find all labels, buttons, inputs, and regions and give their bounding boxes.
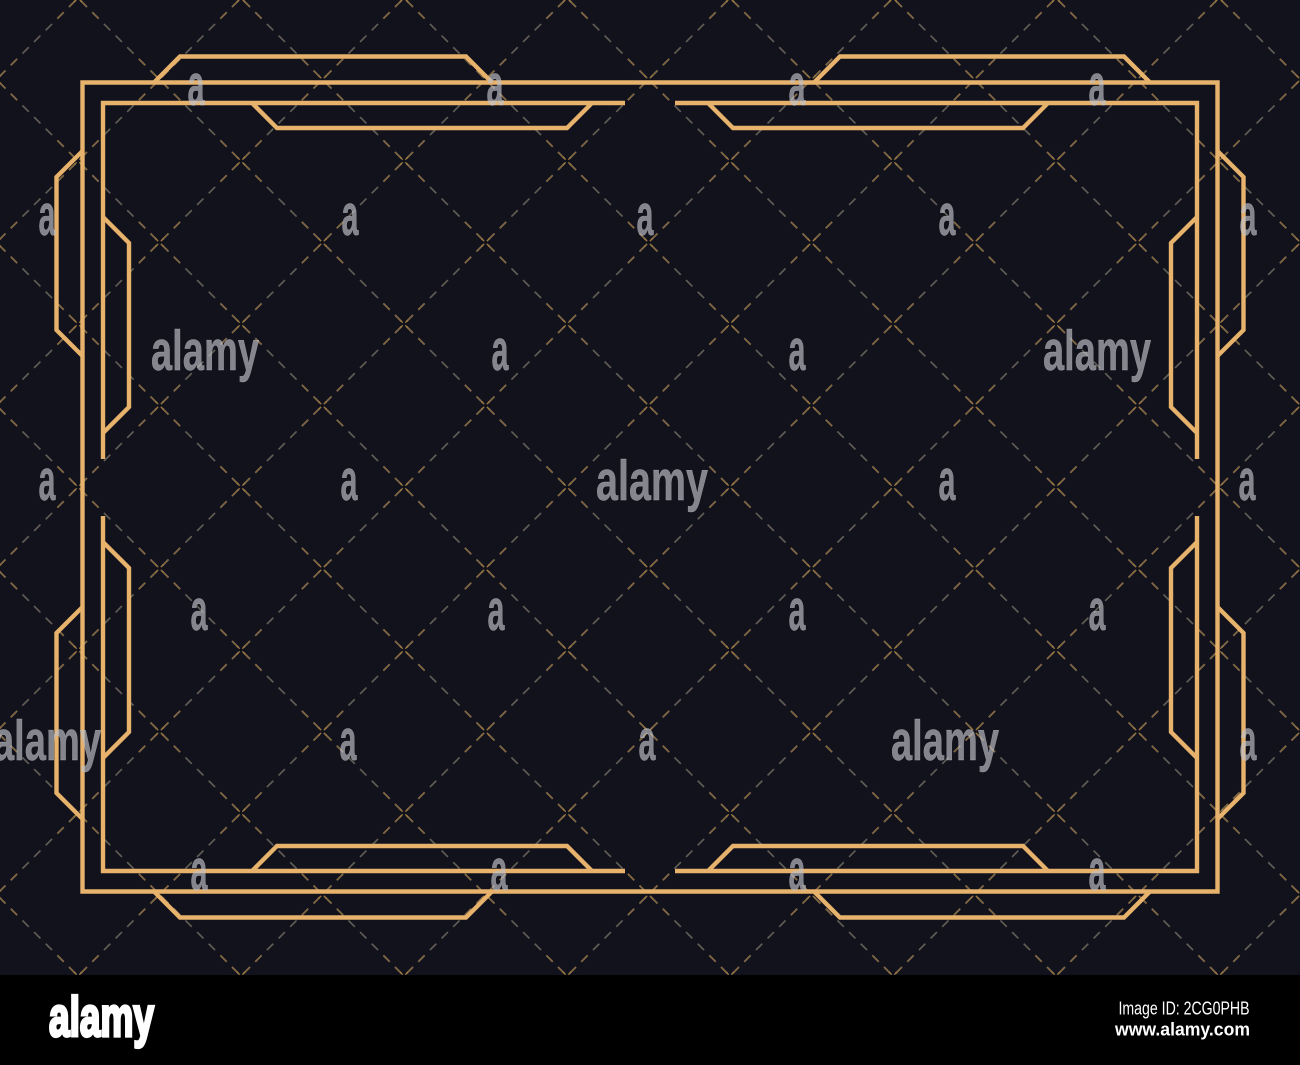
svg-text:Image ID: 2CG0PHB: Image ID: 2CG0PHB [1119,999,1250,1019]
svg-text:alamy: alamy [1043,319,1151,383]
svg-text:a: a [39,183,56,248]
svg-text:a: a [789,838,806,903]
svg-text:alamy: alamy [151,319,259,383]
svg-text:a: a [1089,838,1106,903]
svg-text:a: a [789,318,806,383]
svg-text:a: a [191,838,208,903]
svg-text:www.alamy.com: www.alamy.com [1114,1020,1250,1040]
svg-text:a: a [191,578,208,643]
svg-text:alamy: alamy [891,709,999,773]
svg-text:a: a [789,53,806,118]
svg-text:a: a [340,708,357,773]
svg-text:a: a [639,708,656,773]
svg-text:a: a [188,53,205,118]
svg-text:a: a [1089,578,1106,643]
svg-text:a: a [491,838,508,903]
svg-text:a: a [488,578,505,643]
svg-text:alamy: alamy [596,449,708,513]
svg-text:a: a [1240,708,1257,773]
svg-text:alamy: alamy [0,709,101,773]
svg-text:a: a [1240,183,1257,248]
svg-text:alamy: alamy [49,985,154,1048]
svg-text:a: a [939,183,956,248]
svg-text:a: a [789,578,806,643]
svg-text:a: a [637,183,654,248]
svg-text:a: a [487,53,504,118]
svg-text:a: a [492,318,509,383]
svg-text:a: a [341,448,358,513]
svg-text:a: a [1089,53,1106,118]
svg-text:a: a [1239,448,1256,513]
svg-text:a: a [342,183,359,248]
svg-text:a: a [39,448,56,513]
svg-text:a: a [939,448,956,513]
